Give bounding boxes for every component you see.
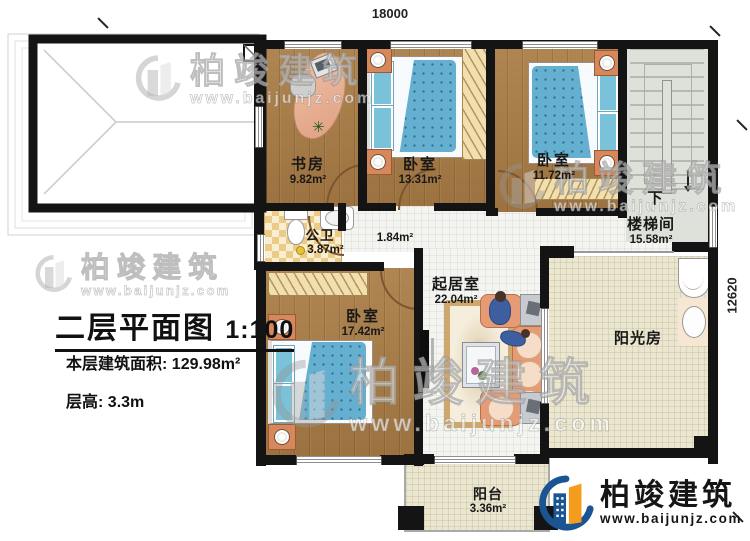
wall-segment [256, 455, 296, 465]
window [255, 106, 263, 148]
person-head [521, 329, 530, 338]
lamp-icon [599, 155, 615, 171]
sink-icon [682, 306, 706, 338]
room-area: 3.87m² [288, 244, 352, 258]
brand-text: 柏竣建筑 www.baijunjz.com [600, 480, 742, 527]
wall-segment [540, 448, 718, 458]
watermark-text: 柏竣建筑 www.baijunjz.com [81, 254, 231, 299]
armchair-cushion [488, 396, 514, 421]
room-name: 书房 [263, 156, 353, 174]
wall-segment [338, 203, 346, 231]
room-label-balcony: 阳台 3.36m² [448, 486, 528, 517]
brand-logo-icon [537, 474, 595, 532]
stair-handrail [662, 80, 672, 194]
room-name: 卧室 [375, 156, 465, 174]
room-label-bedroom-large: 卧室 17.42m² [318, 308, 408, 340]
office-chair [290, 74, 316, 98]
wardrobe [268, 272, 368, 296]
column [398, 506, 424, 530]
sunroom-opening-line [574, 251, 674, 253]
pillow [372, 106, 393, 150]
room-area: 17.42m² [318, 326, 408, 340]
wall-segment [254, 40, 264, 266]
room-area: 15.58m² [606, 234, 696, 248]
nightstand [364, 47, 392, 73]
floor-height-line: 层高: 3.3m [66, 388, 144, 412]
dimension-tick [97, 17, 108, 28]
wall-segment [618, 40, 627, 218]
floor-height-value: 3.3m [108, 394, 144, 411]
title-block: 二层平面图 1:100 [55, 303, 294, 347]
side-table-decor [526, 399, 541, 414]
stair-direction-line [687, 170, 689, 186]
window [257, 234, 265, 262]
lamp-icon [599, 55, 615, 71]
wall-segment [486, 208, 498, 216]
wall-segment [486, 40, 495, 210]
lamp-icon [274, 429, 290, 445]
lamp-icon [370, 52, 386, 68]
nightstand [268, 424, 296, 450]
room-label-sunroom: 阳光房 [593, 330, 683, 348]
room-label-living: 起居室 22.04m² [411, 276, 501, 308]
sofa-cushion [516, 361, 542, 388]
watermark: 柏竣建筑 www.baijunjz.com [34, 254, 231, 299]
floor-area-line: 本层建筑面积: 129.98m² [66, 350, 240, 374]
wall-segment [358, 203, 396, 211]
armchair [480, 390, 522, 426]
room-area: 1.84m² [360, 232, 430, 246]
tv-stand [431, 338, 434, 380]
floor-area-value: 129.98m² [172, 356, 241, 373]
plant-icon: ✳ [312, 118, 325, 136]
room-label-bedroom-top: 卧室 13.31m² [375, 156, 465, 188]
brand-logo: 柏竣建筑 www.baijunjz.com [537, 474, 742, 532]
watermark-icon [34, 254, 73, 293]
plan-scale: 1:100 [225, 316, 294, 344]
window [390, 41, 472, 49]
room-area: 13.31m² [375, 174, 465, 188]
wall-segment [708, 40, 718, 464]
dimension-top: 18000 [355, 6, 425, 21]
room-label-bathroom: 公卫 3.87m² [288, 228, 352, 258]
room-label-study: 书房 9.82m² [263, 156, 353, 188]
brand-website: www.baijunjz.com [600, 511, 742, 526]
room-name: 阳台 [448, 486, 528, 503]
room-area: 22.04m² [411, 294, 501, 308]
window [296, 456, 382, 465]
watermark-site: www.baijunjz.com [81, 283, 231, 300]
room-label-hallway: 1.84m² [360, 232, 430, 246]
room-label-bedroom-right: 卧室 11.72m² [509, 152, 599, 184]
window [522, 41, 598, 49]
wall-segment [434, 203, 494, 211]
room-name: 卧室 [509, 152, 599, 170]
shower-inner [682, 263, 704, 290]
room-name: 楼梯间 [606, 216, 696, 234]
room-name: 卧室 [318, 308, 408, 326]
floor-plan-canvas: ✳ [0, 0, 750, 541]
room-name: 起居室 [411, 276, 501, 294]
room-area-value: 3.87m² [307, 244, 343, 256]
dimension-right: 12620 [725, 266, 740, 326]
room-area: 11.72m² [509, 170, 599, 184]
side-table-decor [526, 301, 541, 316]
wall-segment [358, 40, 367, 210]
flowers-leaf-icon [478, 371, 487, 380]
watermark-name: 柏竣建筑 [81, 254, 231, 283]
pillow [274, 384, 294, 422]
down-text: 下 [644, 190, 666, 208]
wall-segment [404, 454, 434, 464]
stair-down-arrow-icon [684, 186, 692, 192]
wall-segment [256, 266, 266, 466]
nightstand [594, 50, 620, 76]
lower-roof-drawing [6, 28, 268, 242]
floor-height-label: 层高: [66, 394, 103, 411]
computer-screen [315, 58, 331, 72]
room-area: 3.36m² [448, 503, 528, 517]
dimension-tick [709, 25, 720, 36]
plan-title-text: 二层平面图 [55, 312, 215, 345]
room-name: 阳光房 [593, 330, 683, 348]
sliding-door [434, 456, 516, 464]
window [709, 206, 717, 248]
light-dot-icon [296, 246, 305, 255]
brand-name: 柏竣建筑 [600, 480, 742, 512]
shower-icon [678, 258, 710, 298]
plan-title: 二层平面图 1:100 [55, 312, 294, 352]
window [284, 41, 342, 49]
wall-segment [536, 208, 626, 216]
coffee-table [462, 342, 500, 388]
dimension-tick [736, 119, 747, 130]
room-name: 公卫 [288, 228, 352, 244]
room-area: 9.82m² [263, 174, 353, 188]
room-label-stairwell: 楼梯间 15.58m² [606, 216, 696, 248]
wall-segment [540, 246, 574, 258]
stair-down-label: 下 [644, 190, 666, 208]
glass-partition [541, 308, 549, 404]
wall-segment [254, 203, 334, 211]
column [694, 436, 718, 458]
wall-segment [256, 262, 384, 271]
floor-area-label: 本层建筑面积: [66, 356, 167, 373]
tv-icon [420, 330, 429, 388]
